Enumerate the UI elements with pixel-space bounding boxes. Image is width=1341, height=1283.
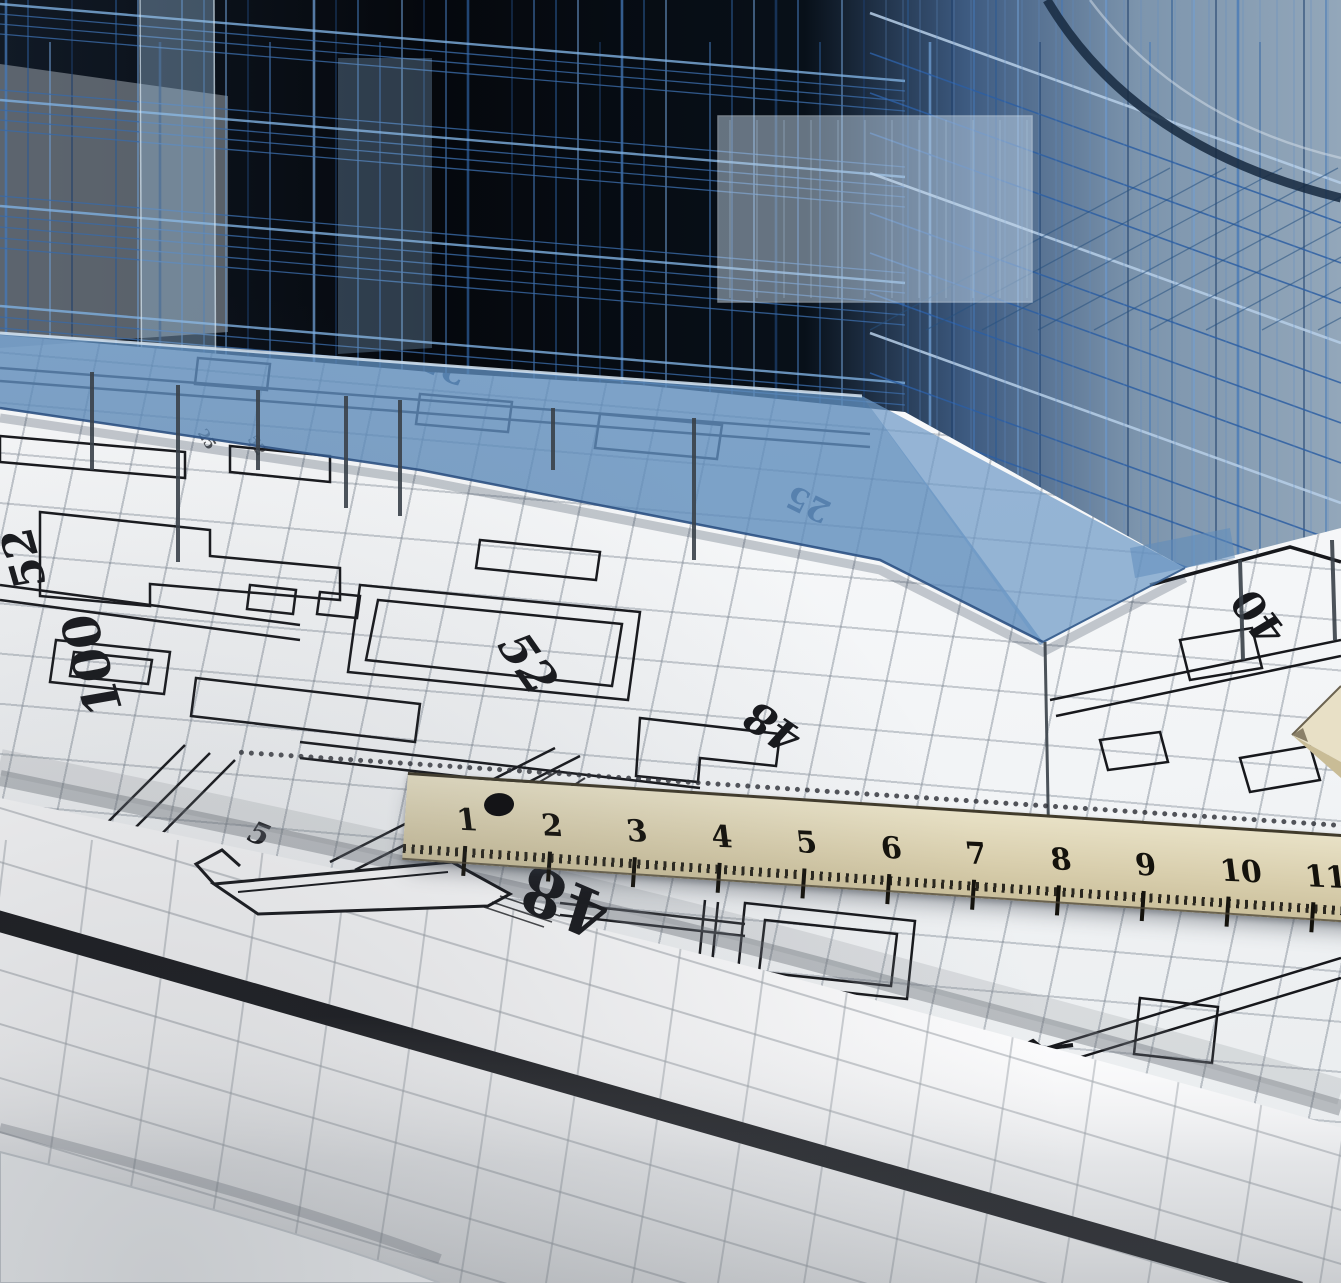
pencil-tip [0,0,1341,1283]
architectural-render-scene: 52 100 52 48 40 25 25 25 52 5 [0,0,1341,1283]
